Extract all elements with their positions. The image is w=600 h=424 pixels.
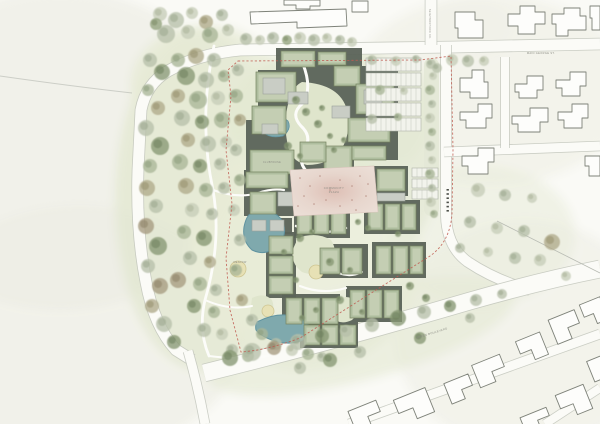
tree-canopy-core — [173, 55, 180, 62]
parking-row — [366, 103, 421, 116]
green-roof-inner — [379, 249, 389, 272]
tree-canopy-core — [493, 224, 499, 230]
tree-canopy-core — [528, 194, 533, 199]
tree-canopy-core — [303, 109, 307, 113]
tree-canopy-core — [426, 142, 431, 147]
tree-canopy-core — [282, 250, 285, 253]
tree-canopy-core — [152, 20, 158, 26]
tree-canopy-core — [320, 106, 323, 109]
plaza-figure-dot — [319, 175, 321, 177]
road-surface — [444, 146, 600, 152]
tree-canopy-core — [144, 86, 150, 92]
map-label: NEIGHBORHOOD RD. — [428, 9, 431, 39]
tree-canopy-core — [201, 17, 208, 24]
tree-canopy-core — [304, 350, 310, 356]
tree-canopy-core — [429, 157, 433, 161]
tree-canopy-core — [430, 73, 434, 77]
site-plan-map: MAIN GEORGE ST.NEIGHBORHOOD RD.COMMUNITY… — [0, 0, 600, 424]
tree-canopy-core — [179, 69, 188, 78]
tree-canopy-core — [429, 185, 433, 189]
green-roof-inner — [272, 259, 291, 272]
green-roof-inner — [284, 54, 313, 65]
gray-roof-terrace — [263, 78, 285, 94]
tree-canopy-core — [348, 38, 353, 43]
green-roof-inner — [396, 249, 406, 272]
tree-canopy-core — [216, 160, 222, 166]
tree-canopy-core — [140, 122, 148, 130]
plan-canvas: MAIN GEORGE ST.NEIGHBORHOOD RD.COMMUNITY… — [0, 0, 600, 424]
tree-canopy-core — [484, 248, 489, 253]
tree-canopy-core — [242, 35, 248, 41]
tree-canopy-core — [392, 312, 400, 320]
platform-mark — [447, 193, 449, 195]
plaza-figure-dot — [339, 179, 341, 181]
tree-canopy-core — [296, 364, 302, 370]
tree-canopy-core — [317, 331, 324, 338]
tree-canopy-core — [204, 29, 212, 37]
tree-canopy-core — [220, 72, 226, 78]
tree-canopy-core — [238, 296, 244, 302]
tree-canopy-core — [498, 290, 503, 295]
green-roof-inner — [272, 279, 291, 292]
tree-canopy-core — [501, 191, 507, 197]
tree-canopy-core — [216, 114, 224, 122]
platform-mark — [447, 210, 449, 212]
tree-canopy-core — [143, 261, 150, 268]
tree-canopy-core — [180, 180, 188, 188]
tree-canopy-core — [197, 117, 204, 124]
green-roof-inner — [413, 249, 421, 272]
green-roof-inner — [321, 55, 344, 63]
tree-canopy-core — [293, 97, 297, 101]
plaza-figure-dot — [303, 195, 305, 197]
tree-canopy-core — [433, 64, 438, 69]
tree-canopy-core — [200, 74, 208, 82]
tree-canopy-core — [173, 91, 180, 98]
tree-canopy-core — [236, 236, 242, 242]
plaza-figure-dot — [367, 183, 369, 185]
tree-canopy-core — [199, 325, 206, 332]
gray-roof-terrace — [278, 192, 294, 206]
tree-canopy-core — [337, 297, 341, 301]
plaza-figure-dot — [359, 175, 361, 177]
green-roof-inner — [405, 207, 414, 228]
tree-canopy-core — [195, 161, 202, 168]
tree-canopy-core — [427, 198, 432, 203]
tree-canopy-core — [368, 115, 373, 120]
green-roof-inner — [388, 207, 398, 228]
tree-canopy-core — [269, 34, 275, 40]
tree-canopy-core — [231, 91, 238, 98]
tree-canopy-core — [315, 121, 319, 125]
tree-canopy-core — [198, 232, 206, 240]
tree-canopy-core — [327, 259, 331, 263]
tree-canopy-core — [332, 148, 335, 151]
tree-canopy-core — [258, 330, 264, 336]
tree-canopy-core — [155, 9, 162, 16]
tree-canopy-core — [323, 34, 328, 39]
tree-canopy-core — [187, 205, 194, 212]
tree-canopy-core — [230, 206, 236, 212]
tree-canopy-core — [188, 9, 194, 15]
platform-mark — [447, 206, 449, 208]
tree-canopy-core — [297, 235, 301, 239]
tree-canopy-core — [172, 274, 180, 282]
tree-canopy-core — [210, 308, 216, 314]
tree-canopy-core — [156, 66, 164, 74]
map-label: CLUBHOUSE — [263, 161, 281, 164]
gray-roof-terrace — [377, 193, 405, 201]
green-roof-inner — [327, 149, 350, 170]
plaza-figure-dot — [299, 177, 301, 179]
green-roof-inner — [355, 149, 384, 158]
tree-canopy-core — [431, 211, 435, 215]
tree-canopy-core — [413, 56, 417, 60]
tree-canopy-core — [472, 296, 478, 302]
plaza-figure-dot — [365, 195, 367, 197]
tree-canopy-core — [356, 220, 359, 223]
tree-canopy-core — [179, 227, 186, 234]
tree-canopy-core — [245, 345, 254, 354]
tree-canopy-core — [296, 34, 302, 40]
tree-canopy-core — [426, 86, 431, 91]
tree-canopy-core — [310, 230, 313, 233]
tree-canopy-core — [218, 330, 224, 336]
tree-canopy-core — [520, 227, 526, 233]
platform-mark — [447, 197, 449, 199]
tree-canopy-core — [426, 114, 431, 119]
tree-canopy-core — [426, 170, 431, 175]
map-label: MAIN GEORGE ST. — [527, 51, 555, 55]
tree-canopy-core — [407, 283, 411, 287]
tree-canopy-core — [376, 86, 381, 91]
gray-roof-terrace — [262, 124, 278, 134]
tree-canopy-core — [283, 36, 288, 41]
tree-canopy-core — [145, 161, 152, 168]
tree-canopy-core — [256, 36, 261, 41]
tree-canopy-core — [294, 278, 297, 281]
tree-canopy-core — [140, 220, 148, 228]
plaza-figure-dot — [297, 205, 299, 207]
tree-canopy-core — [480, 57, 485, 62]
tree-canopy-core — [427, 60, 432, 65]
tree-canopy-core — [473, 185, 480, 192]
tree-canopy-core — [325, 355, 332, 362]
tree-canopy-core — [511, 254, 517, 260]
green-roof-inner — [325, 301, 336, 322]
tree-canopy-core — [170, 14, 178, 22]
tree-canopy-core — [169, 337, 176, 344]
tree-canopy-core — [153, 139, 162, 148]
tree-canopy-core — [151, 201, 158, 208]
plaza-figure-dot — [339, 205, 341, 207]
tree-canopy-core — [220, 184, 226, 190]
tree-canopy-core — [158, 318, 166, 326]
tree-canopy-core — [456, 244, 461, 249]
tree-canopy-core — [366, 226, 369, 229]
tree-canopy-core — [224, 26, 230, 32]
tree-canopy-core — [202, 138, 210, 146]
tree-canopy-core — [285, 143, 289, 147]
tree-canopy-core — [141, 182, 149, 190]
tree-canopy-core — [190, 50, 198, 58]
tree-canopy-core — [206, 258, 212, 264]
tree-canopy-core — [145, 55, 152, 62]
tree-canopy-core — [201, 185, 208, 192]
tree-canopy-core — [429, 129, 433, 133]
tree-canopy-core — [147, 301, 154, 308]
tree-canopy-core — [153, 103, 160, 110]
tree-canopy-core — [342, 138, 345, 141]
plaza-figure-dot — [351, 185, 353, 187]
tree-canopy-core — [466, 314, 471, 319]
tree-canopy-core — [174, 156, 182, 164]
tree-canopy-core — [185, 253, 192, 260]
platform-mark — [447, 189, 449, 191]
tree-canopy-core — [328, 134, 331, 137]
parking-row — [366, 88, 421, 101]
tree-canopy-core — [232, 146, 238, 152]
tree-canopy-core — [310, 36, 316, 42]
green-roof-inner — [370, 293, 380, 316]
tree-canopy-core — [356, 348, 362, 354]
tree-canopy-core — [342, 327, 348, 333]
tree-canopy-core — [154, 280, 162, 288]
tree-canopy-core — [189, 301, 196, 308]
green-roof-inner — [337, 69, 358, 84]
tree-canopy-core — [423, 295, 427, 299]
tree-canopy-core — [208, 210, 214, 216]
parking-row — [366, 73, 421, 86]
tree-canopy-core — [395, 114, 399, 118]
tree-canopy-core — [209, 55, 216, 62]
play-area — [262, 305, 274, 317]
tree-canopy-core — [464, 57, 470, 63]
map-label: MEADOW — [233, 261, 247, 264]
green-roof-inner — [380, 172, 403, 189]
tree-canopy-core — [212, 286, 218, 292]
tree-canopy-core — [234, 66, 240, 72]
tree-canopy-core — [314, 308, 317, 311]
tree-canopy-core — [348, 268, 351, 271]
green-roof-inner — [289, 301, 300, 322]
tree-canopy-core — [213, 93, 220, 100]
tree-canopy-core — [236, 176, 242, 182]
tree-canopy-core — [298, 154, 301, 157]
tree-canopy-core — [360, 310, 363, 313]
tree-canopy-core — [183, 135, 190, 142]
tree-canopy-core — [269, 343, 276, 350]
tree-canopy-core — [191, 93, 200, 102]
plaza-figure-dot — [309, 185, 311, 187]
tree-canopy-core — [419, 307, 426, 314]
tree-canopy-core — [236, 116, 242, 122]
tree-canopy-core — [224, 352, 232, 360]
green-roof-inner — [272, 239, 291, 252]
gray-roof-terrace — [270, 220, 284, 231]
tree-canopy-core — [466, 218, 472, 224]
tree-canopy-core — [318, 353, 323, 358]
plaza-figure-dot — [313, 203, 315, 205]
green-roof-inner — [249, 175, 286, 186]
plaza-figure-dot — [351, 199, 353, 201]
tree-canopy-core — [536, 256, 542, 262]
tree-canopy-core — [232, 266, 238, 272]
tree-canopy-core — [429, 101, 433, 105]
tree-canopy-core — [159, 27, 168, 36]
tree-canopy-core — [151, 239, 160, 248]
tree-canopy-core — [183, 27, 190, 34]
map-label: PLAZA — [329, 190, 340, 194]
tree-canopy-core — [195, 279, 202, 286]
platform-mark — [447, 202, 449, 204]
tree-canopy-core — [546, 236, 554, 244]
plaza-figure-dot — [325, 199, 327, 201]
context-building — [352, 1, 368, 12]
green-roof-inner — [253, 195, 274, 212]
gray-roof-terrace — [252, 220, 266, 231]
tree-canopy-core — [176, 112, 184, 120]
tree-canopy-core — [446, 302, 452, 308]
tree-canopy-core — [367, 320, 374, 327]
tree-canopy-core — [248, 316, 254, 322]
green-roof-inner — [303, 145, 324, 160]
tree-canopy-core — [396, 232, 399, 235]
plaza-figure-dot — [355, 209, 357, 211]
tree-canopy-core — [300, 316, 303, 319]
tree-canopy-core — [401, 88, 405, 92]
tree-canopy-core — [562, 272, 567, 277]
gray-roof-terrace — [332, 106, 350, 118]
tree-canopy-core — [336, 36, 341, 41]
tree-canopy-core — [218, 11, 224, 17]
